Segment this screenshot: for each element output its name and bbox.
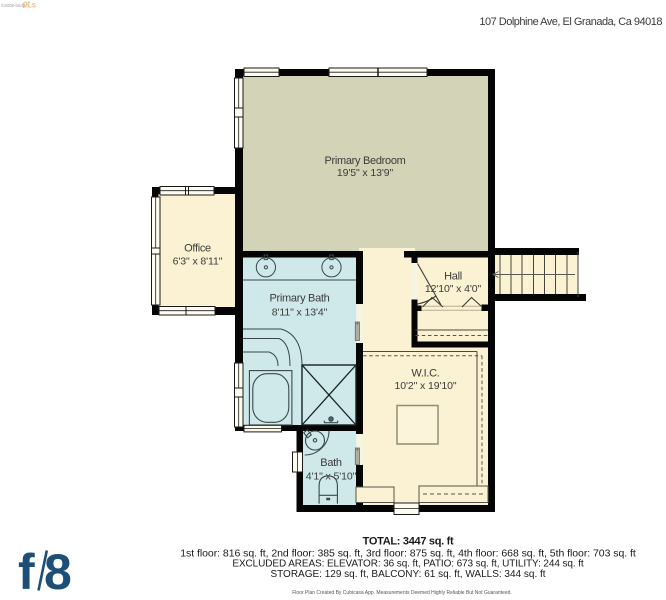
svg-text:1st floor: 816 sq. ft, 2nd flo: 1st floor: 816 sq. ft, 2nd floor: 385 sq… [180, 547, 636, 559]
svg-text:STORAGE: 129 sq. ft, BALCONY:: STORAGE: 129 sq. ft, BALCONY: 61 sq. ft,… [270, 569, 545, 580]
svg-text:Primary Bedroom: Primary Bedroom [324, 155, 405, 167]
svg-text:12'10" x 4'0": 12'10" x 4'0" [425, 283, 482, 295]
svg-text:Bath: Bath [320, 457, 342, 469]
svg-text:19'5" x 13'9": 19'5" x 13'9" [337, 167, 394, 179]
svg-text:6'3" x 8'11": 6'3" x 8'11" [173, 256, 223, 268]
svg-text:MLS: MLS [23, 3, 37, 10]
svg-text:Hall: Hall [444, 271, 462, 283]
svg-text:Floor Plan Created By Cubicasa: Floor Plan Created By Cubicasa App. Meas… [292, 590, 512, 596]
svg-text:Primary Bath: Primary Bath [270, 293, 330, 305]
svg-text:8: 8 [44, 544, 72, 600]
svg-text:107 Dolphine Ave, El Granada,: 107 Dolphine Ave, El Granada, Ca 94018 [479, 16, 662, 28]
svg-text:TOTAL: 3447 sq. ft: TOTAL: 3447 sq. ft [363, 536, 454, 548]
svg-text:EXCLUDED AREAS: ELEVATOR: 36 s: EXCLUDED AREAS: ELEVATOR: 36 sq. ft, PAT… [232, 559, 583, 570]
svg-text:Office: Office [184, 243, 211, 255]
svg-text:f: f [18, 544, 35, 600]
svg-text:10'2" x 19'10": 10'2" x 19'10" [394, 380, 456, 392]
svg-text:4'1" x 5'10": 4'1" x 5'10" [306, 471, 357, 483]
svg-text:8'11" x 13'4": 8'11" x 13'4" [272, 307, 328, 319]
svg-text:W.I.C.: W.I.C. [411, 368, 439, 380]
